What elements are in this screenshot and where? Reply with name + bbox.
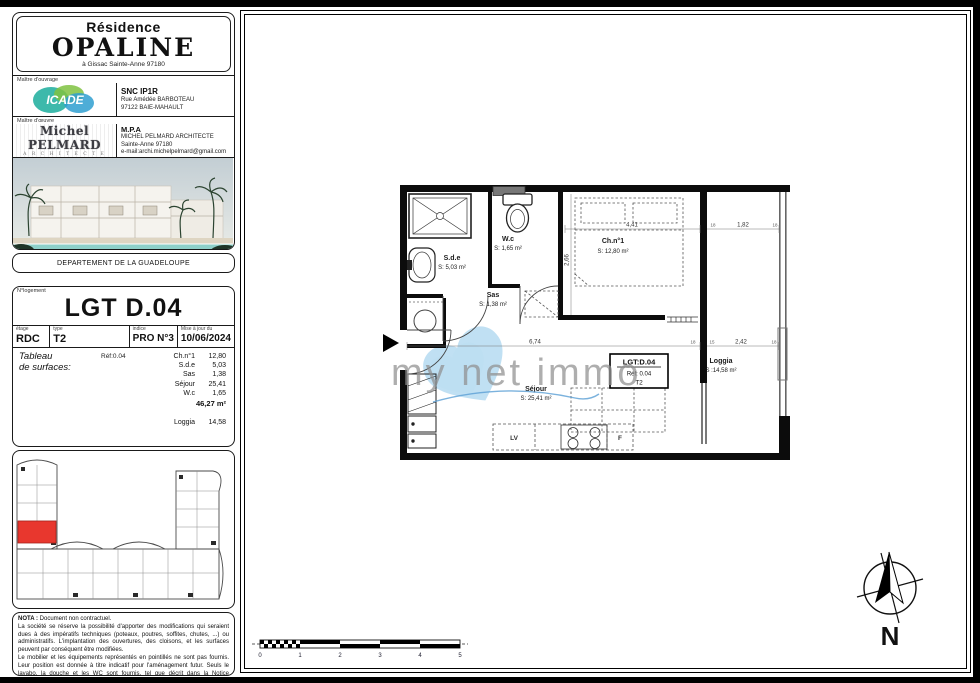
- room-name: Sas: [487, 292, 500, 299]
- unit-info-row: étage RDC type T2 indice PRO N°3 Mise à …: [13, 326, 234, 348]
- dimension-labels: 4,41 1,82 6,74 2,42 2,66 18 18 18 15 18: [529, 223, 778, 346]
- building-photo: [13, 157, 234, 250]
- svg-text:1: 1: [298, 653, 302, 659]
- nota-paragraph-2: Le mobilier et les équipements représent…: [18, 655, 229, 676]
- ouvrage-row: ICADE SNC IP1R Rue Amédée BARBOTEAU 9712…: [13, 83, 234, 116]
- surface-row: W.c1,65: [140, 389, 226, 398]
- icade-logo: ICADE: [13, 83, 117, 116]
- dim-bedroom-height: 2,66: [565, 254, 571, 266]
- room-area: S: 12,80 m²: [597, 249, 628, 255]
- room-area: S: 1,38 m²: [479, 302, 507, 308]
- ouvrage-info: SNC IP1R Rue Amédée BARBOTEAU 97122 BAIE…: [117, 85, 234, 114]
- loggia-window-wall: [778, 192, 787, 416]
- oeuvre-name: MICHEL PELMARD ARCHITECTE: [121, 134, 230, 142]
- bedroom-bay-window: [667, 317, 698, 322]
- bed: [575, 198, 683, 286]
- highlighted-unit: [18, 521, 56, 543]
- icade-logo-graphic: ICADE: [17, 84, 113, 115]
- unit-title: LGT D.04: [13, 294, 234, 326]
- department-caption: DEPARTEMENT DE LA GUADELOUPE: [57, 260, 190, 267]
- ouvrage-address2: 97122 BAIE-MAHAULT: [121, 105, 230, 113]
- nota-intro: Document non contractuel.: [40, 616, 112, 622]
- scan-edge-top: [0, 0, 980, 7]
- washbasin: [407, 248, 435, 282]
- pelmard-logo-sub: A R C H I T E C T E: [13, 152, 116, 157]
- dim-tick: 18: [771, 340, 777, 345]
- cell-type: type T2: [50, 326, 129, 347]
- svg-text:4: 4: [418, 653, 422, 659]
- oeuvre-info: M.P.A MICHEL PELMARD ARCHITECTE Sainte-A…: [117, 123, 234, 159]
- svg-text:5: 5: [458, 653, 462, 659]
- room-name: W.c: [502, 236, 514, 243]
- unit-cartouche: N°logement LGT D.04 étage RDC type T2 in…: [12, 286, 235, 447]
- dim-tick: 18: [710, 223, 716, 228]
- north-label: N: [881, 621, 900, 648]
- oeuvre-email: e-mail:archi.michelpelmard@gmail.com: [121, 149, 230, 157]
- north-compass: N: [853, 548, 927, 648]
- date-value: 10/06/2024: [181, 333, 231, 344]
- surface-row: S.d.e5,03: [140, 361, 226, 370]
- dim-tick: 18: [772, 223, 778, 228]
- indice-value: PRO N°3: [133, 333, 174, 344]
- pelmard-logo: Michel PELMARD A R C H I T E C T E: [13, 124, 117, 157]
- dim-tick: 15: [709, 340, 715, 345]
- surface-row: Ch.n°112,80: [140, 352, 226, 361]
- toilet: [503, 194, 532, 232]
- oeuvre-address: Sainte-Anne 97180: [121, 142, 230, 150]
- pelmard-logo-name: Michel PELMARD: [13, 124, 116, 152]
- washing-machine: [414, 310, 436, 332]
- cell-date: Mise à jour du 10/06/2024: [178, 326, 234, 347]
- svg-text:3: 3: [378, 653, 382, 659]
- sliding-door: [702, 383, 706, 444]
- entry-arrow: [383, 334, 399, 352]
- dim-sejour-width: 6,74: [529, 340, 541, 346]
- site-key-plan: [12, 450, 235, 609]
- type-value: T2: [53, 333, 125, 345]
- room-area: S: 25,41 m²: [520, 396, 551, 402]
- scan-edge-bottom: [0, 677, 980, 683]
- oeuvre-company: M.P.A: [121, 125, 230, 134]
- wardrobe: [525, 291, 558, 317]
- svg-text:2: 2: [338, 653, 342, 659]
- room-area: S: 1,65 m²: [494, 246, 522, 252]
- dishwasher-label: LV: [510, 435, 518, 442]
- nota-title: NOTA :: [18, 616, 38, 622]
- dim-loggia-width: 2,42: [735, 340, 747, 346]
- ouvrage-address1: Rue Amédée BARBOTEAU: [121, 97, 230, 105]
- svg-text:0: 0: [258, 653, 262, 659]
- surface-list: Ch.n°112,80 S.d.e5,03 Sas1,38 Séjour25,4…: [140, 352, 226, 428]
- scale-bar-labels: 0 1 2 3 4 5: [258, 653, 462, 659]
- surface-row: Sas1,38: [140, 370, 226, 379]
- ouvrage-company: SNC IP1R: [121, 87, 230, 97]
- cell-etage: étage RDC: [13, 326, 50, 347]
- surface-loggia-row: Loggia14,58: [140, 418, 226, 427]
- oeuvre-row: Michel PELMARD A R C H I T E C T E M.P.A…: [13, 124, 234, 157]
- room-name: Ch.n°1: [602, 237, 624, 245]
- dim-loggia-top: 1,82: [737, 223, 749, 229]
- floor-plan: LV F 4,41 1,82 6,74 2,42 2,66 18 18 18 1…: [375, 178, 805, 478]
- department-caption-box: DEPARTEMENT DE LA GUADELOUPE: [12, 253, 235, 273]
- icade-logo-text: ICADE: [46, 93, 84, 107]
- room-name: S.d.e: [444, 255, 461, 262]
- watermark-text: my net immo: [391, 352, 641, 394]
- dim-tick: 18: [690, 340, 696, 345]
- residence-header: Résidence OPALINE à Gissac Sainte-Anne 9…: [16, 16, 231, 72]
- room-name: Loggia: [710, 358, 733, 365]
- cell-indice: indice PRO N°3: [130, 326, 178, 347]
- residence-name: OPALINE: [17, 35, 230, 61]
- nota-box: NOTA : Document non contractuel. La soci…: [12, 612, 235, 676]
- surface-ref: Réf:0.04: [101, 353, 126, 360]
- unit-number-label: N°logement: [13, 287, 234, 294]
- surface-total: 46,27 m²: [140, 399, 226, 409]
- residence-address: à Gissac Sainte-Anne 97180: [17, 61, 230, 68]
- title-block: Résidence OPALINE à Gissac Sainte-Anne 9…: [12, 12, 235, 250]
- surface-row: Séjour25,41: [140, 380, 226, 389]
- scan-edge-right: [973, 0, 980, 683]
- scale-bar: 0 1 2 3 4 5: [252, 636, 468, 662]
- fridge-label: F: [618, 435, 622, 442]
- kitchen-counter: LV F: [493, 424, 633, 450]
- building-photo-graphic: [13, 158, 233, 250]
- shower: [409, 194, 471, 238]
- surface-table: Tableau de surfaces: Réf:0.04 Ch.n°112,8…: [13, 348, 234, 447]
- site-key-plan-graphic: [13, 451, 232, 608]
- room-area: S: 5,03 m²: [438, 265, 466, 271]
- room-area: S :14,58 m²: [705, 368, 736, 374]
- dim-bedroom-width: 4,41: [626, 223, 638, 229]
- etage-value: RDC: [16, 333, 46, 345]
- surface-table-title: Tableau de surfaces:: [19, 352, 71, 374]
- nota-paragraph-1: La société se réserve la possibilité d'a…: [18, 624, 229, 655]
- ouvrage-section-label: Maître d'ouvrage: [13, 75, 234, 83]
